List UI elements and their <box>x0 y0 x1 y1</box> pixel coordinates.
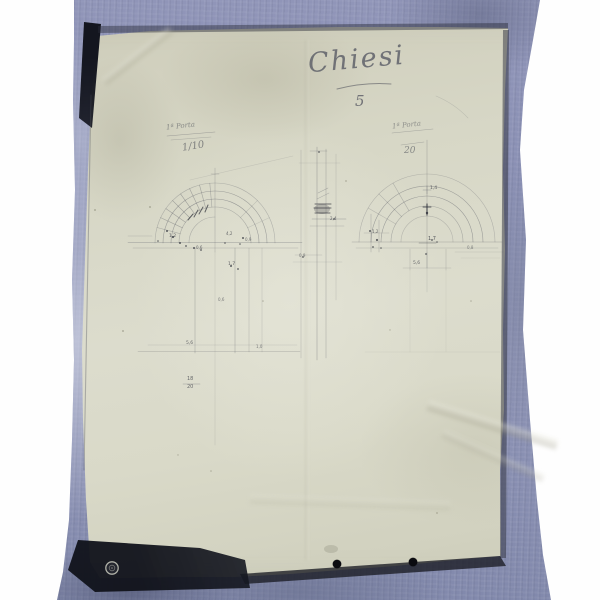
photo-of-archival-drawing: Chiesi 5 1ª Porta 1/10 1ª Porta 20 1,20,… <box>0 0 600 600</box>
pencil-drawing <box>0 0 600 600</box>
center-pier-drawing <box>293 147 346 360</box>
left-edge-crease <box>84 95 91 470</box>
left-portal-drawing <box>128 132 302 445</box>
punch-hole-right <box>409 558 418 567</box>
title-underline <box>337 84 468 118</box>
foxing-specks <box>94 180 472 514</box>
right-portal-drawing <box>352 129 503 352</box>
punch-hole-left <box>333 560 342 569</box>
collection-stamp-icon <box>106 562 118 574</box>
pencil-smudge <box>324 545 338 553</box>
